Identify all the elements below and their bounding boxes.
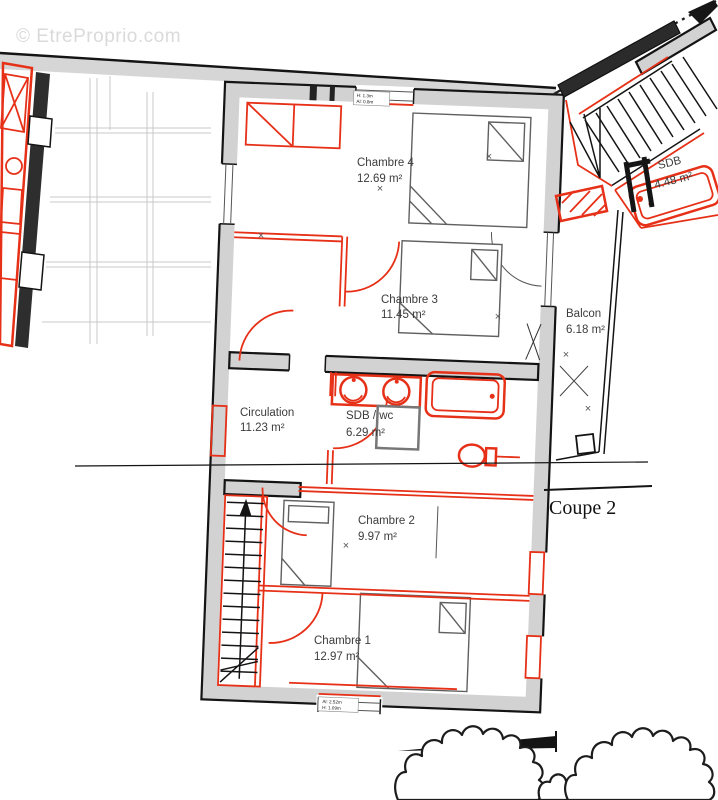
room-label-chambre3: Chambre 3 [381, 294, 438, 306]
annex-wall-corner [688, 0, 718, 24]
cross-mark: × [495, 311, 501, 323]
room-area-balcon: 6.18 m² [566, 324, 605, 336]
room-label-chambre4: Chambre 4 [357, 157, 414, 169]
balcony-pillar [576, 434, 595, 454]
section-label: Coupe 2 [549, 497, 616, 519]
cross-mark: × [486, 151, 492, 163]
window-right-2 [524, 636, 545, 679]
bed-chambre3 [399, 241, 502, 337]
window-top-note-2: Al: 0.8m [356, 99, 373, 105]
left-strip-circle [6, 158, 22, 174]
faint-grid [42, 76, 211, 344]
room-label-circulation: Circulation [240, 407, 294, 419]
window-top-note-1: H: 1.3m [357, 93, 373, 99]
cross-mark: × [377, 183, 383, 195]
room-area-sdb-wc: 6.29 m² [346, 427, 385, 439]
section-label-line [544, 486, 652, 490]
door-bottom: Al: 2.52m H: 1.09m [316, 694, 383, 717]
hatched-landing [556, 186, 607, 221]
room-area-chambre2: 9.97 m² [358, 531, 397, 543]
left-strip-box3 [0, 232, 20, 280]
window-top: H: 1.3m Al: 0.8m [353, 85, 414, 107]
wall-door-gap [289, 353, 326, 374]
bed-chambre1 [357, 593, 471, 691]
window-right-1 [528, 552, 549, 595]
cross-mark: × [343, 540, 349, 552]
room-area-chambre3: 11.45 m² [381, 309, 426, 321]
floor-plan: H: 1.3m Al: 0.8m [0, 0, 718, 800]
door-bottom-note-1: Al: 2.52m [322, 699, 342, 705]
room-area-circulation: 11.23 m² [240, 422, 285, 434]
room-label-balcon: Balcon [566, 308, 601, 320]
cross-mark: × [258, 230, 264, 242]
door-bottom-note-2: H: 1.09m [322, 705, 341, 711]
watermark: © EtreProprio.com [16, 26, 181, 47]
top-wall-mark1 [309, 85, 317, 100]
left-strip-box2 [1, 188, 22, 224]
tree-blob-left [395, 726, 544, 800]
room-label-chambre1: Chambre 1 [314, 635, 371, 647]
window-left [218, 164, 239, 225]
bed-chambre4 [409, 113, 531, 227]
room-label-chambre2: Chambre 2 [358, 515, 415, 527]
left-strip-notch1 [28, 116, 52, 147]
top-wall-mark2 [329, 86, 335, 101]
room-area-chambre1: 12.97 m² [314, 651, 360, 663]
balcony-passage-cross [560, 366, 588, 396]
cross-mark: × [563, 349, 569, 361]
annex: SDB 4.48 m² [554, 0, 718, 228]
room-label-sdb-wc: SDB / wc [346, 410, 394, 422]
left-strip-notch2 [19, 252, 44, 290]
tree-blob-right [565, 728, 714, 800]
left-wall-strip [0, 63, 52, 348]
cross-mark: × [585, 403, 591, 415]
